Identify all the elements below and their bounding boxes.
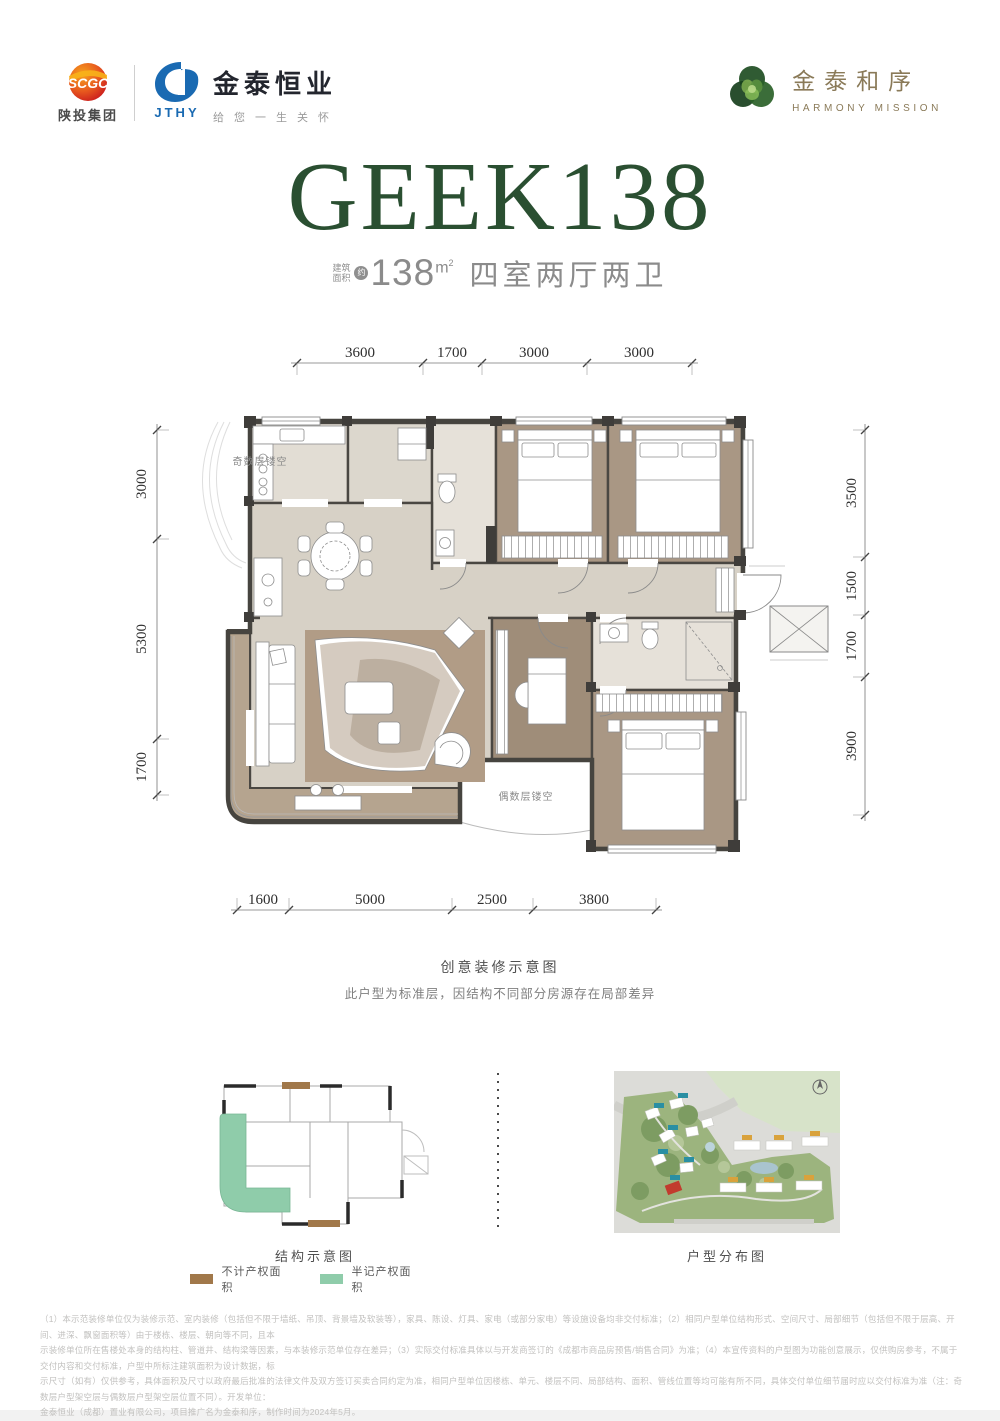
jthy-tagline: 给您一生关怀 bbox=[213, 109, 339, 125]
header-divider bbox=[134, 65, 135, 121]
site-plan bbox=[614, 1071, 840, 1233]
disclaimer-line: 金泰恒业（成都）置业有限公司，项目推广名为金泰和序，制作时间为2024年5月。 bbox=[40, 1405, 965, 1421]
hero-subtitle: 建筑 面积 约 138 m2 四室两厅两卫 bbox=[0, 252, 1000, 294]
jthy-logo: JTHY 金泰恒业 给您一生关怀 bbox=[151, 60, 339, 125]
approx-badge: 约 bbox=[354, 266, 368, 280]
stair-landing bbox=[749, 566, 828, 660]
plan-caption: 创意装修示意图 bbox=[0, 957, 1000, 977]
scgc-flame-icon: SCGC bbox=[64, 61, 112, 103]
room-layout-text: 四室两厅两卫 bbox=[470, 252, 668, 294]
jthy-logo-text: JTHY bbox=[154, 105, 199, 120]
jthy-name: 金泰恒业 bbox=[213, 64, 339, 101]
svg-text:1700: 1700 bbox=[134, 752, 150, 782]
no-right-area-top bbox=[282, 1082, 310, 1089]
svg-text:5000: 5000 bbox=[355, 892, 385, 908]
svg-text:3000: 3000 bbox=[519, 345, 549, 361]
plan-note: 此户型为标准层，因结构不同部分房源存在局部差异 bbox=[0, 983, 1000, 1002]
svg-text:3600: 3600 bbox=[345, 345, 375, 361]
half-right-area bbox=[220, 1114, 290, 1212]
svg-text:3800: 3800 bbox=[579, 892, 609, 908]
siteplan-caption: 户型分布图 bbox=[614, 1246, 840, 1265]
legend-label: 不计产权面积 bbox=[221, 1263, 284, 1295]
area-value: 138 bbox=[370, 252, 435, 294]
legend-label: 半记产权面积 bbox=[351, 1263, 414, 1295]
legend-item: 不计产权面积 bbox=[190, 1263, 284, 1295]
structure-diagram bbox=[190, 1070, 440, 1238]
disclaimer-line: 示装修单位所在售楼处本身的结构柱、管道井、结构梁等因素，与本装修示范单位存在差异… bbox=[40, 1343, 965, 1374]
svg-text:3900: 3900 bbox=[844, 731, 860, 761]
page-title: GEEK138 bbox=[0, 148, 1000, 245]
svg-text:1500: 1500 bbox=[844, 571, 860, 601]
no-right-area-bottom bbox=[308, 1220, 340, 1227]
section-separator bbox=[497, 1073, 499, 1233]
svg-text:3000: 3000 bbox=[624, 345, 654, 361]
odd-void-label: 奇数层镂空 bbox=[233, 455, 288, 468]
svg-text:5300: 5300 bbox=[134, 624, 150, 654]
disclaimer-line: 示尺寸（如有）仅供参考，具体面积及尺寸以政府最后批准的法律文件及双方签订买卖合同… bbox=[40, 1374, 965, 1405]
legend-swatch-green bbox=[320, 1274, 343, 1284]
area-unit: m2 bbox=[435, 258, 453, 277]
scgc-logo: SCGC 陕投集团 bbox=[58, 61, 118, 124]
even-void-label: 偶数层镂空 bbox=[499, 790, 554, 803]
svg-text:1700: 1700 bbox=[437, 345, 467, 361]
structure-legend: 不计产权面积 半记产权面积 bbox=[190, 1263, 450, 1295]
svg-text:1600: 1600 bbox=[248, 892, 278, 908]
floorplan-drawing: 3600 1700 3000 3000 1600 5000 2500 3800 … bbox=[130, 330, 890, 940]
disclaimer-line: （1）本示范装修单位仅为装修示范、室内装修（包括但不限于墙纸、吊顶、背景墙及软装… bbox=[40, 1312, 965, 1343]
svg-text:1700: 1700 bbox=[844, 631, 860, 661]
brand-name: 金泰和序 bbox=[792, 62, 942, 96]
brand-clover-icon bbox=[724, 60, 780, 116]
disclaimer-text: （1）本示范装修单位仅为装修示范、室内装修（包括但不限于墙纸、吊顶、背景墙及软装… bbox=[40, 1312, 965, 1421]
svg-text:3000: 3000 bbox=[134, 469, 150, 499]
brand-name-en: HARMONY MISSION bbox=[792, 103, 942, 114]
odd-void-contours bbox=[202, 422, 246, 568]
scgc-name: 陕投集团 bbox=[58, 105, 118, 124]
svg-text:SCGC: SCGC bbox=[68, 75, 109, 91]
svg-text:3500: 3500 bbox=[844, 478, 860, 508]
developer-logos: SCGC 陕投集团 JTHY 金泰恒业 给您一生关怀 bbox=[58, 60, 339, 125]
brand-logo: 金泰和序 HARMONY MISSION bbox=[724, 60, 942, 116]
jthy-drop-icon bbox=[151, 60, 203, 104]
legend-swatch-brown bbox=[190, 1274, 213, 1284]
legend-item: 半记产权面积 bbox=[320, 1263, 414, 1295]
area-label: 建筑 面积 bbox=[332, 263, 350, 283]
svg-text:2500: 2500 bbox=[477, 892, 507, 908]
